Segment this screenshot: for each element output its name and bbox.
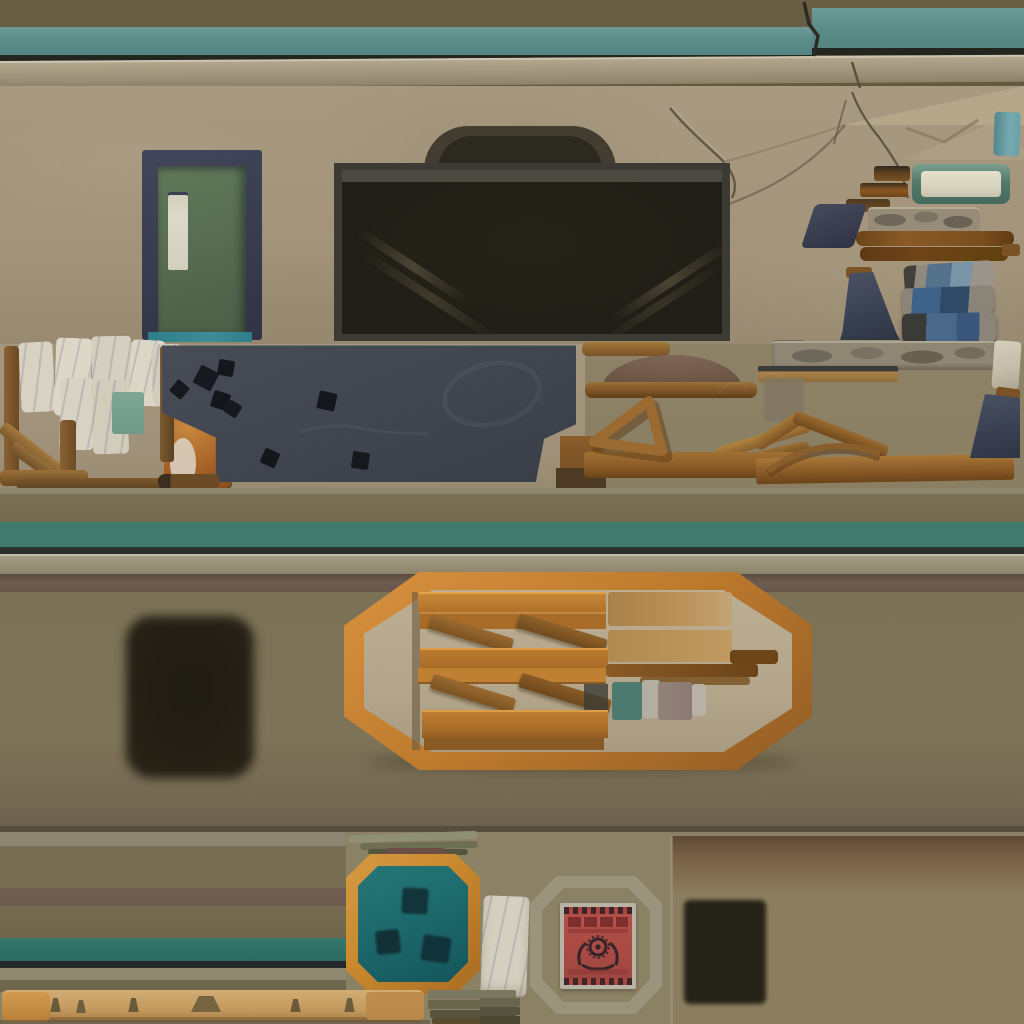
slat-a	[418, 592, 606, 612]
slat-f	[424, 738, 604, 750]
pallet-bar-nub	[730, 650, 778, 664]
mid-teal-stripe	[0, 522, 1024, 548]
right-panel-edge	[670, 836, 673, 1024]
pallet-bar-long	[606, 664, 758, 677]
slat-dark-gap	[584, 684, 608, 710]
plank-shadow	[0, 1020, 430, 1024]
peg-plank-left-block	[2, 992, 50, 1022]
hatch-hole-1	[401, 887, 428, 914]
teal-hatch-inner	[358, 866, 468, 982]
mid-olive-band	[0, 494, 1024, 524]
pallet-block-2	[608, 630, 732, 662]
hatch-hole-2	[375, 929, 401, 955]
chip-mauve	[658, 682, 692, 720]
poster-bottom-serration	[564, 978, 632, 985]
poster-gear-emblem	[566, 933, 630, 973]
pallet-block-1	[608, 592, 732, 626]
stripe-panel	[0, 832, 346, 992]
poster-top-serration	[564, 907, 632, 914]
dark-vent	[684, 900, 766, 1004]
chip-teal	[612, 682, 642, 720]
plank-stack-small	[480, 996, 522, 1024]
texture-atlas-canvas	[0, 0, 1024, 1024]
poster-title-bar	[568, 917, 628, 927]
poster-footer-bar	[568, 969, 628, 974]
slat-e	[422, 710, 608, 738]
peg-plank-right-seg	[366, 992, 424, 1020]
poster-red-field	[564, 907, 632, 985]
slat-c	[420, 648, 608, 668]
hatch-hole-3	[420, 934, 451, 964]
chip-light	[692, 684, 706, 716]
vector-details	[0, 0, 1024, 512]
paper-scrap	[480, 895, 529, 997]
burn-blob	[126, 616, 254, 778]
poster	[560, 903, 636, 989]
